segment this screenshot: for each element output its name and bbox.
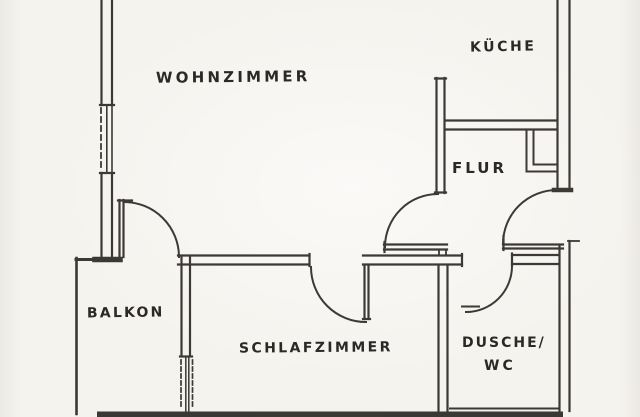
room-label-wohnzimmer: WOHNZIMMER xyxy=(156,67,311,87)
room-label-dusche-wc-line1: DUSCHE/ xyxy=(462,335,546,351)
room-label-dusche-wc-line2: WC xyxy=(484,358,516,374)
room-label-balkon: BALKON xyxy=(87,304,165,321)
floor-plan-page: WOHNZIMMER KÜCHE FLUR BALKON SCHLAFZIMME… xyxy=(0,0,640,417)
room-label-flur: FLUR xyxy=(452,159,507,177)
room-label-schlafzimmer: SCHLAFZIMMER xyxy=(239,339,393,356)
room-label-kueche: KÜCHE xyxy=(470,38,537,55)
